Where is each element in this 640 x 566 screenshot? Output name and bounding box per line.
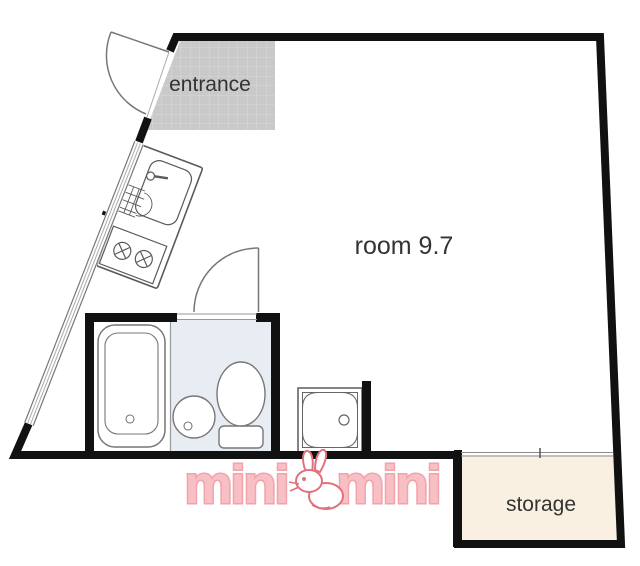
bathroom-door-swing — [177, 248, 259, 320]
entrance-label: entrance — [169, 73, 251, 96]
toilet — [217, 362, 265, 448]
entrance-door-arc — [106, 32, 146, 114]
storage-label: storage — [506, 493, 576, 516]
washer-pan — [298, 388, 362, 452]
bathroom-door-arc — [194, 248, 259, 312]
tub-drain — [126, 415, 134, 423]
bathtub — [98, 325, 165, 447]
floor-plan: mini mini — [0, 0, 640, 566]
floor-plan-canvas: mini mini — [0, 0, 640, 566]
storage-opening — [461, 448, 613, 458]
rabbit-ear — [303, 451, 313, 472]
entrance-door-leaf — [111, 32, 169, 52]
rabbit-eye — [302, 477, 306, 481]
wall-segment-door-jamb — [139, 118, 148, 142]
room-label: room 9.7 — [355, 232, 454, 260]
washbasin — [173, 396, 215, 438]
logo-text-right: mini — [336, 455, 439, 515]
pan-drain — [339, 415, 349, 425]
rabbit-head — [296, 470, 322, 492]
logo-text-left: mini — [184, 455, 287, 515]
